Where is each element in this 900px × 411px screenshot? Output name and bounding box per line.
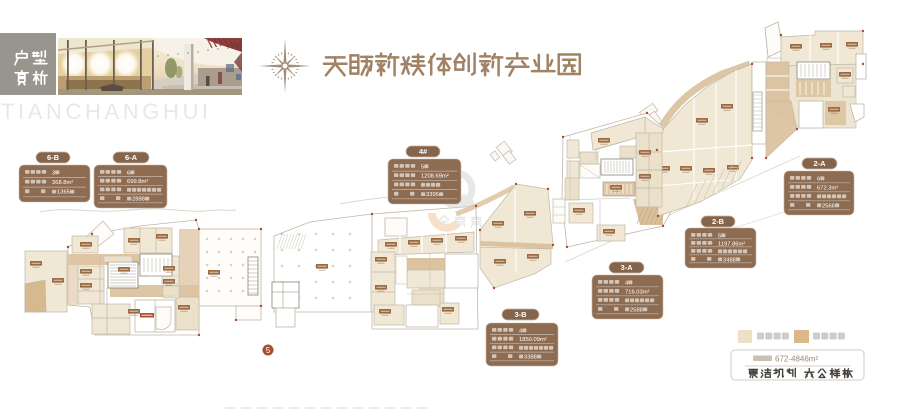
- svg-text:2-B: 2-B: [712, 217, 725, 226]
- svg-text:5: 5: [266, 346, 271, 355]
- svg-text:3388: 3388: [524, 355, 537, 361]
- svg-text:6: 6: [817, 176, 820, 182]
- svg-text:1365: 1365: [57, 190, 70, 196]
- svg-text:672.3m²: 672.3m²: [817, 185, 838, 191]
- svg-text:2588: 2588: [630, 307, 643, 313]
- svg-text:6-A: 6-A: [125, 153, 138, 162]
- svg-text:1850.09m²: 1850.09m²: [519, 337, 547, 343]
- svg-text:2888: 2888: [132, 197, 145, 203]
- svg-text:2-A: 2-A: [813, 159, 826, 168]
- svg-text:3-A: 3-A: [620, 263, 633, 272]
- svg-text:699.8m²: 699.8m²: [127, 179, 148, 185]
- svg-text:1208.69m²: 1208.69m²: [421, 174, 449, 180]
- svg-text:2566: 2566: [822, 203, 835, 209]
- svg-text:368.8m²: 368.8m²: [52, 180, 73, 186]
- svg-text:5: 5: [421, 164, 424, 170]
- svg-text:6: 6: [127, 170, 130, 176]
- svg-text:672-4846m²: 672-4846m²: [775, 355, 818, 364]
- svg-text:4#: 4#: [419, 147, 428, 156]
- svg-text:3: 3: [52, 170, 55, 176]
- svg-text:6-B: 6-B: [47, 153, 60, 162]
- svg-text:3395: 3395: [426, 192, 439, 198]
- svg-text:716.03m²: 716.03m²: [625, 289, 650, 295]
- svg-text:3-B: 3-B: [514, 310, 527, 319]
